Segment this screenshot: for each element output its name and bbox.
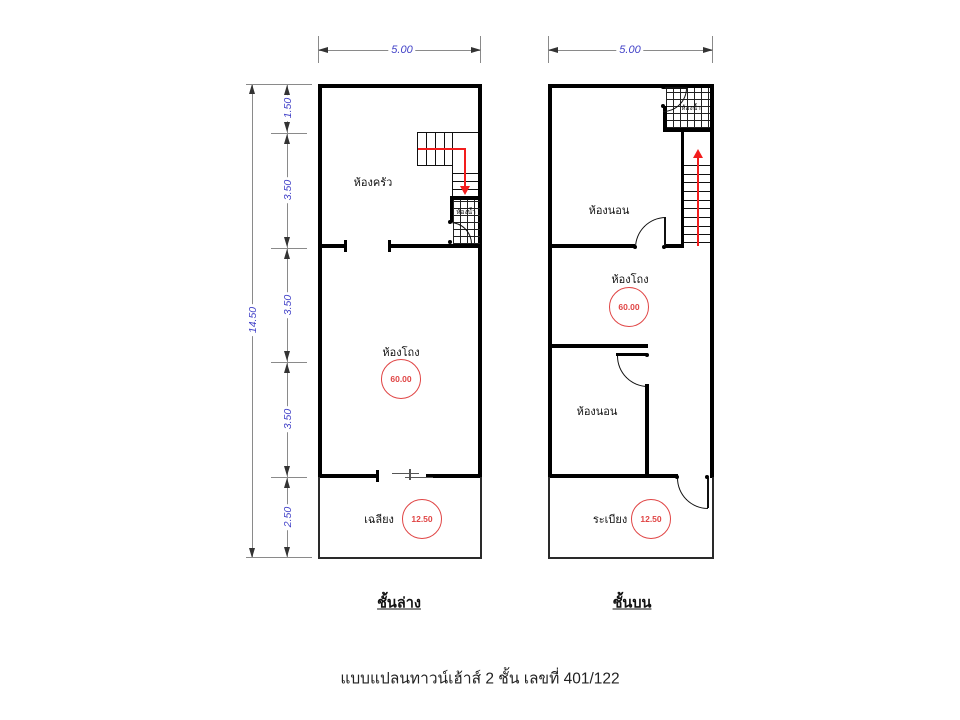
dimension-arrow-icon: [284, 363, 290, 373]
width-dimension: 5.00: [616, 44, 643, 56]
dimension-arrow-icon: [471, 47, 481, 53]
dimension-arrow-icon: [284, 351, 290, 361]
wall: [710, 84, 714, 478]
stair-arrow-head-icon: [693, 149, 703, 158]
wall: [663, 128, 714, 132]
porch-wall: [318, 557, 482, 559]
bathroom-label: ห้องน้ำ: [456, 207, 475, 217]
door-hinge-dot: [675, 475, 679, 479]
porch-label: เฉลียง: [364, 510, 394, 528]
sliding-door-tick: [409, 469, 411, 480]
door-hinge-dot: [662, 245, 666, 249]
porch-wall: [318, 477, 320, 558]
area-value: 60.00: [390, 374, 411, 384]
wall: [426, 474, 482, 478]
dimension-arrow-icon: [548, 47, 558, 53]
bedroom-front-label: ห้องนอน: [589, 201, 630, 219]
area-value: 12.50: [411, 514, 432, 524]
wall: [478, 84, 482, 478]
sheet-title: แบบแปลนทาวน์เฮ้าส์ 2 ชั้น เลขที่ 401/122: [340, 666, 619, 691]
dimension-arrow-icon: [284, 237, 290, 247]
hall-label: ห้องโถง: [611, 270, 648, 288]
area-tag: 12.50: [631, 499, 671, 539]
area-tag: 12.50: [402, 499, 442, 539]
wall: [450, 196, 482, 200]
bathroom-label: ห้องน้ำ: [681, 103, 700, 113]
door-hinge-dot: [448, 220, 452, 224]
dimension-arrow-icon: [284, 478, 290, 488]
wall-end-cap: [344, 240, 347, 252]
area-tag: 60.00: [381, 359, 421, 399]
dimension-arrow-icon: [284, 122, 290, 132]
segment-dimension: 3.50: [282, 177, 294, 203]
dimension-arrow-icon: [284, 85, 290, 95]
dimension-arrow-icon: [284, 134, 290, 144]
bedroom-back-label: ห้องนอน: [577, 402, 618, 420]
floor2-name: ชั้นบน: [613, 592, 652, 615]
balcony-label: ระเบียง: [593, 510, 627, 528]
door-swing-arc: [617, 356, 648, 387]
dimension-arrow-icon: [284, 547, 290, 557]
wall: [548, 344, 648, 348]
dimension-arrow-icon: [318, 47, 328, 53]
door-hinge-dot: [661, 85, 665, 89]
balcony-wall: [548, 477, 550, 558]
wall: [665, 244, 684, 248]
stair-direction-arrow-icon: [464, 149, 466, 186]
door-hinge-dot: [633, 245, 637, 249]
balcony-wall: [712, 477, 714, 558]
dimension-arrow-icon: [284, 466, 290, 476]
porch-wall: [480, 477, 482, 558]
wall-end-cap: [388, 240, 391, 252]
segment-dimension: 3.50: [282, 406, 294, 432]
dimension-arrow-icon: [703, 47, 713, 53]
wall: [548, 474, 678, 478]
kitchen-label: ห้องครัว: [354, 173, 393, 191]
balcony-wall: [548, 557, 714, 559]
wall: [318, 84, 322, 478]
door-hinge-dot: [645, 353, 649, 357]
door-swing-arc: [635, 217, 666, 248]
segment-dimension: 3.50: [282, 292, 294, 318]
stair-direction-arrow-icon: [697, 158, 699, 246]
door-hinge-dot: [705, 475, 709, 479]
stair-direction-arrow-icon: [418, 148, 466, 150]
area-value: 60.00: [618, 302, 639, 312]
wall: [681, 132, 684, 248]
stair-rail: [452, 132, 453, 197]
wall: [645, 384, 649, 478]
dimension-arrow-icon: [249, 84, 255, 94]
door-swing-arc: [677, 478, 708, 509]
wall: [450, 196, 453, 222]
wall: [450, 244, 482, 248]
area-tag: 60.00: [609, 287, 649, 327]
dimension-arrow-icon: [284, 249, 290, 259]
total-height-dimension: 14.50: [247, 304, 259, 336]
sliding-door: [392, 473, 419, 475]
wall: [548, 84, 552, 478]
wall-end-cap: [376, 470, 379, 482]
segment-dimension: 1.50: [282, 95, 294, 121]
dimension-tick: [246, 557, 312, 558]
area-value: 12.50: [640, 514, 661, 524]
floor-plan-sheet: ห้องน้ำ ห้องครัว ห้องโถง 60.00 เฉลียง 12…: [0, 0, 960, 720]
wall: [318, 474, 378, 478]
segment-dimension: 2.50: [282, 504, 294, 530]
wall: [388, 244, 450, 248]
floor1-name: ชั้นล่าง: [377, 592, 421, 615]
wall: [318, 244, 346, 248]
dimension-tick: [246, 84, 312, 85]
width-dimension: 5.00: [388, 44, 415, 56]
wall: [318, 84, 482, 88]
wall: [548, 244, 635, 248]
door-hinge-dot: [661, 104, 665, 108]
stair-arrow-head-icon: [460, 186, 470, 195]
